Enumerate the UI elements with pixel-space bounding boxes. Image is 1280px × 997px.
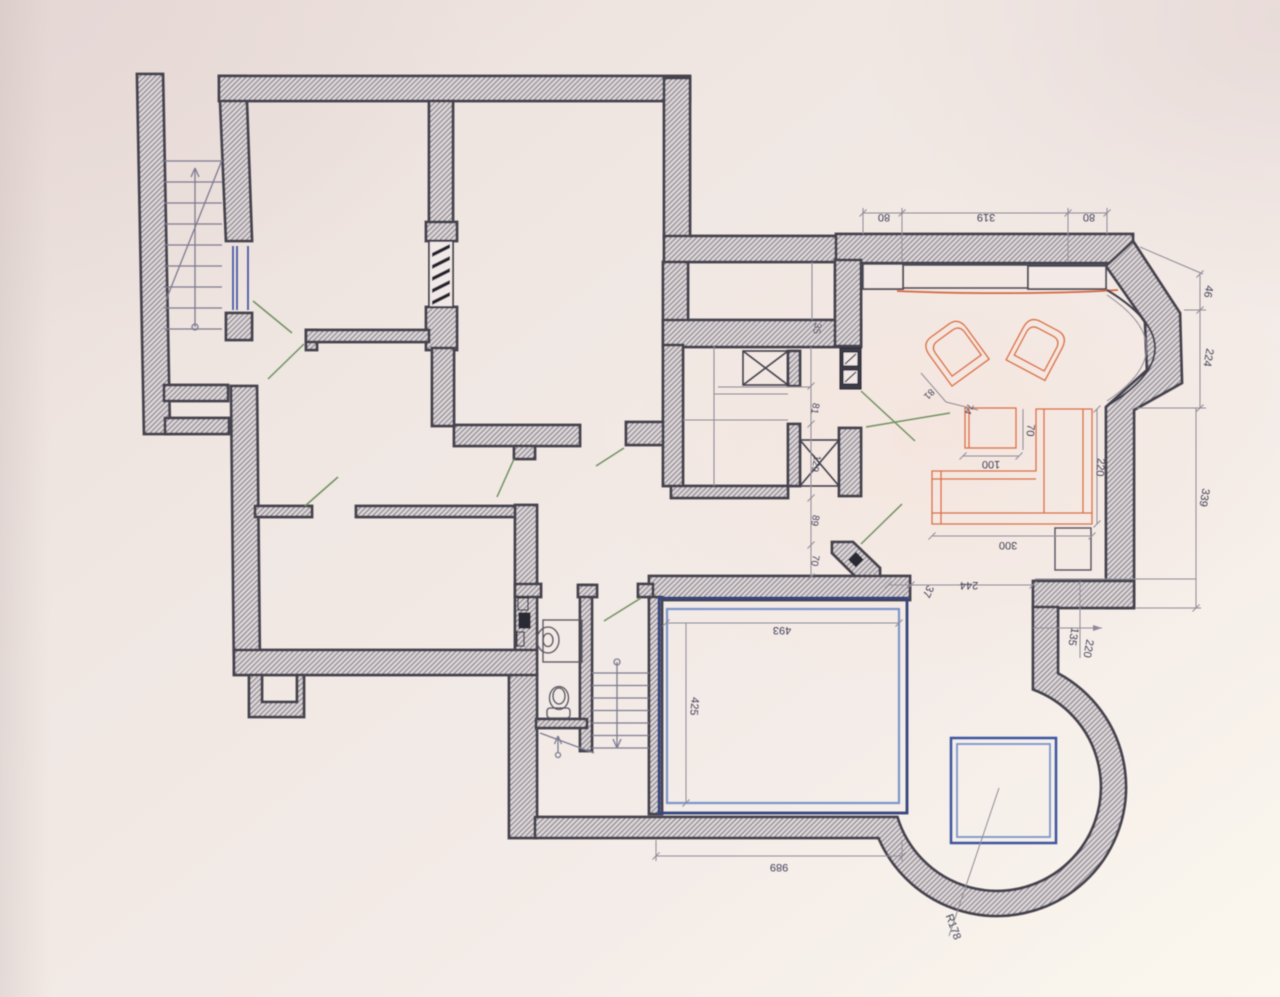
svg-text:100: 100 [982,458,1000,470]
svg-text:80: 80 [878,211,890,223]
svg-text:220: 220 [1093,458,1107,477]
svg-text:300: 300 [999,539,1017,551]
svg-text:493: 493 [773,624,791,636]
svg-text:319: 319 [977,211,995,223]
svg-text:989: 989 [770,861,788,873]
svg-text:70: 70 [1023,424,1036,437]
svg-text:425: 425 [687,697,701,716]
svg-text:46: 46 [1201,284,1215,298]
svg-text:244: 244 [960,579,978,591]
svg-text:80: 80 [1083,211,1095,223]
